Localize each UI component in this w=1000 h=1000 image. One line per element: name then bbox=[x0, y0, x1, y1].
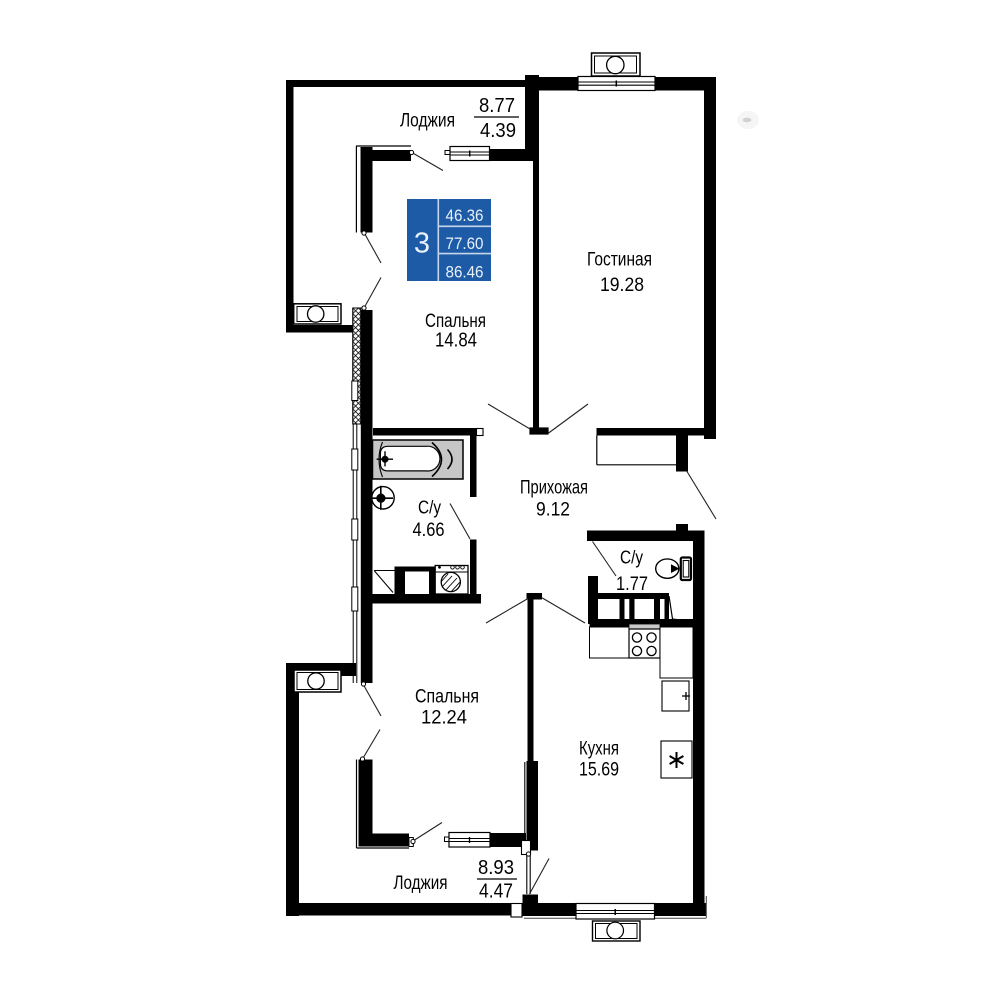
svg-text:1.77: 1.77 bbox=[616, 574, 648, 595]
svg-text:Прихожая: Прихожая bbox=[520, 478, 588, 499]
svg-text:15.69: 15.69 bbox=[579, 760, 619, 781]
svg-text:4.47: 4.47 bbox=[479, 881, 513, 903]
svg-text:4.39: 4.39 bbox=[480, 120, 516, 142]
svg-text:Спальня: Спальня bbox=[415, 687, 479, 708]
svg-text:С/у: С/у bbox=[418, 498, 441, 518]
svg-text:8.93: 8.93 bbox=[478, 857, 514, 879]
svg-text:77.60: 77.60 bbox=[446, 234, 484, 253]
svg-text:С/у: С/у bbox=[620, 548, 643, 568]
svg-text:Гостиная: Гостиная bbox=[587, 250, 652, 271]
svg-text:4.66: 4.66 bbox=[413, 520, 445, 541]
svg-text:14.84: 14.84 bbox=[435, 330, 477, 352]
svg-text:46.36: 46.36 bbox=[446, 206, 484, 225]
svg-text:Кухня: Кухня bbox=[579, 739, 619, 760]
svg-text:8.77: 8.77 bbox=[479, 95, 515, 117]
svg-text:12.24: 12.24 bbox=[421, 708, 467, 729]
svg-text:19.28: 19.28 bbox=[600, 275, 644, 296]
svg-text:Лоджия: Лоджия bbox=[394, 873, 448, 894]
svg-text:Лоджия: Лоджия bbox=[400, 111, 455, 132]
svg-text:9.12: 9.12 bbox=[536, 500, 570, 521]
svg-text:3: 3 bbox=[414, 228, 430, 260]
svg-text:86.46: 86.46 bbox=[446, 263, 484, 282]
